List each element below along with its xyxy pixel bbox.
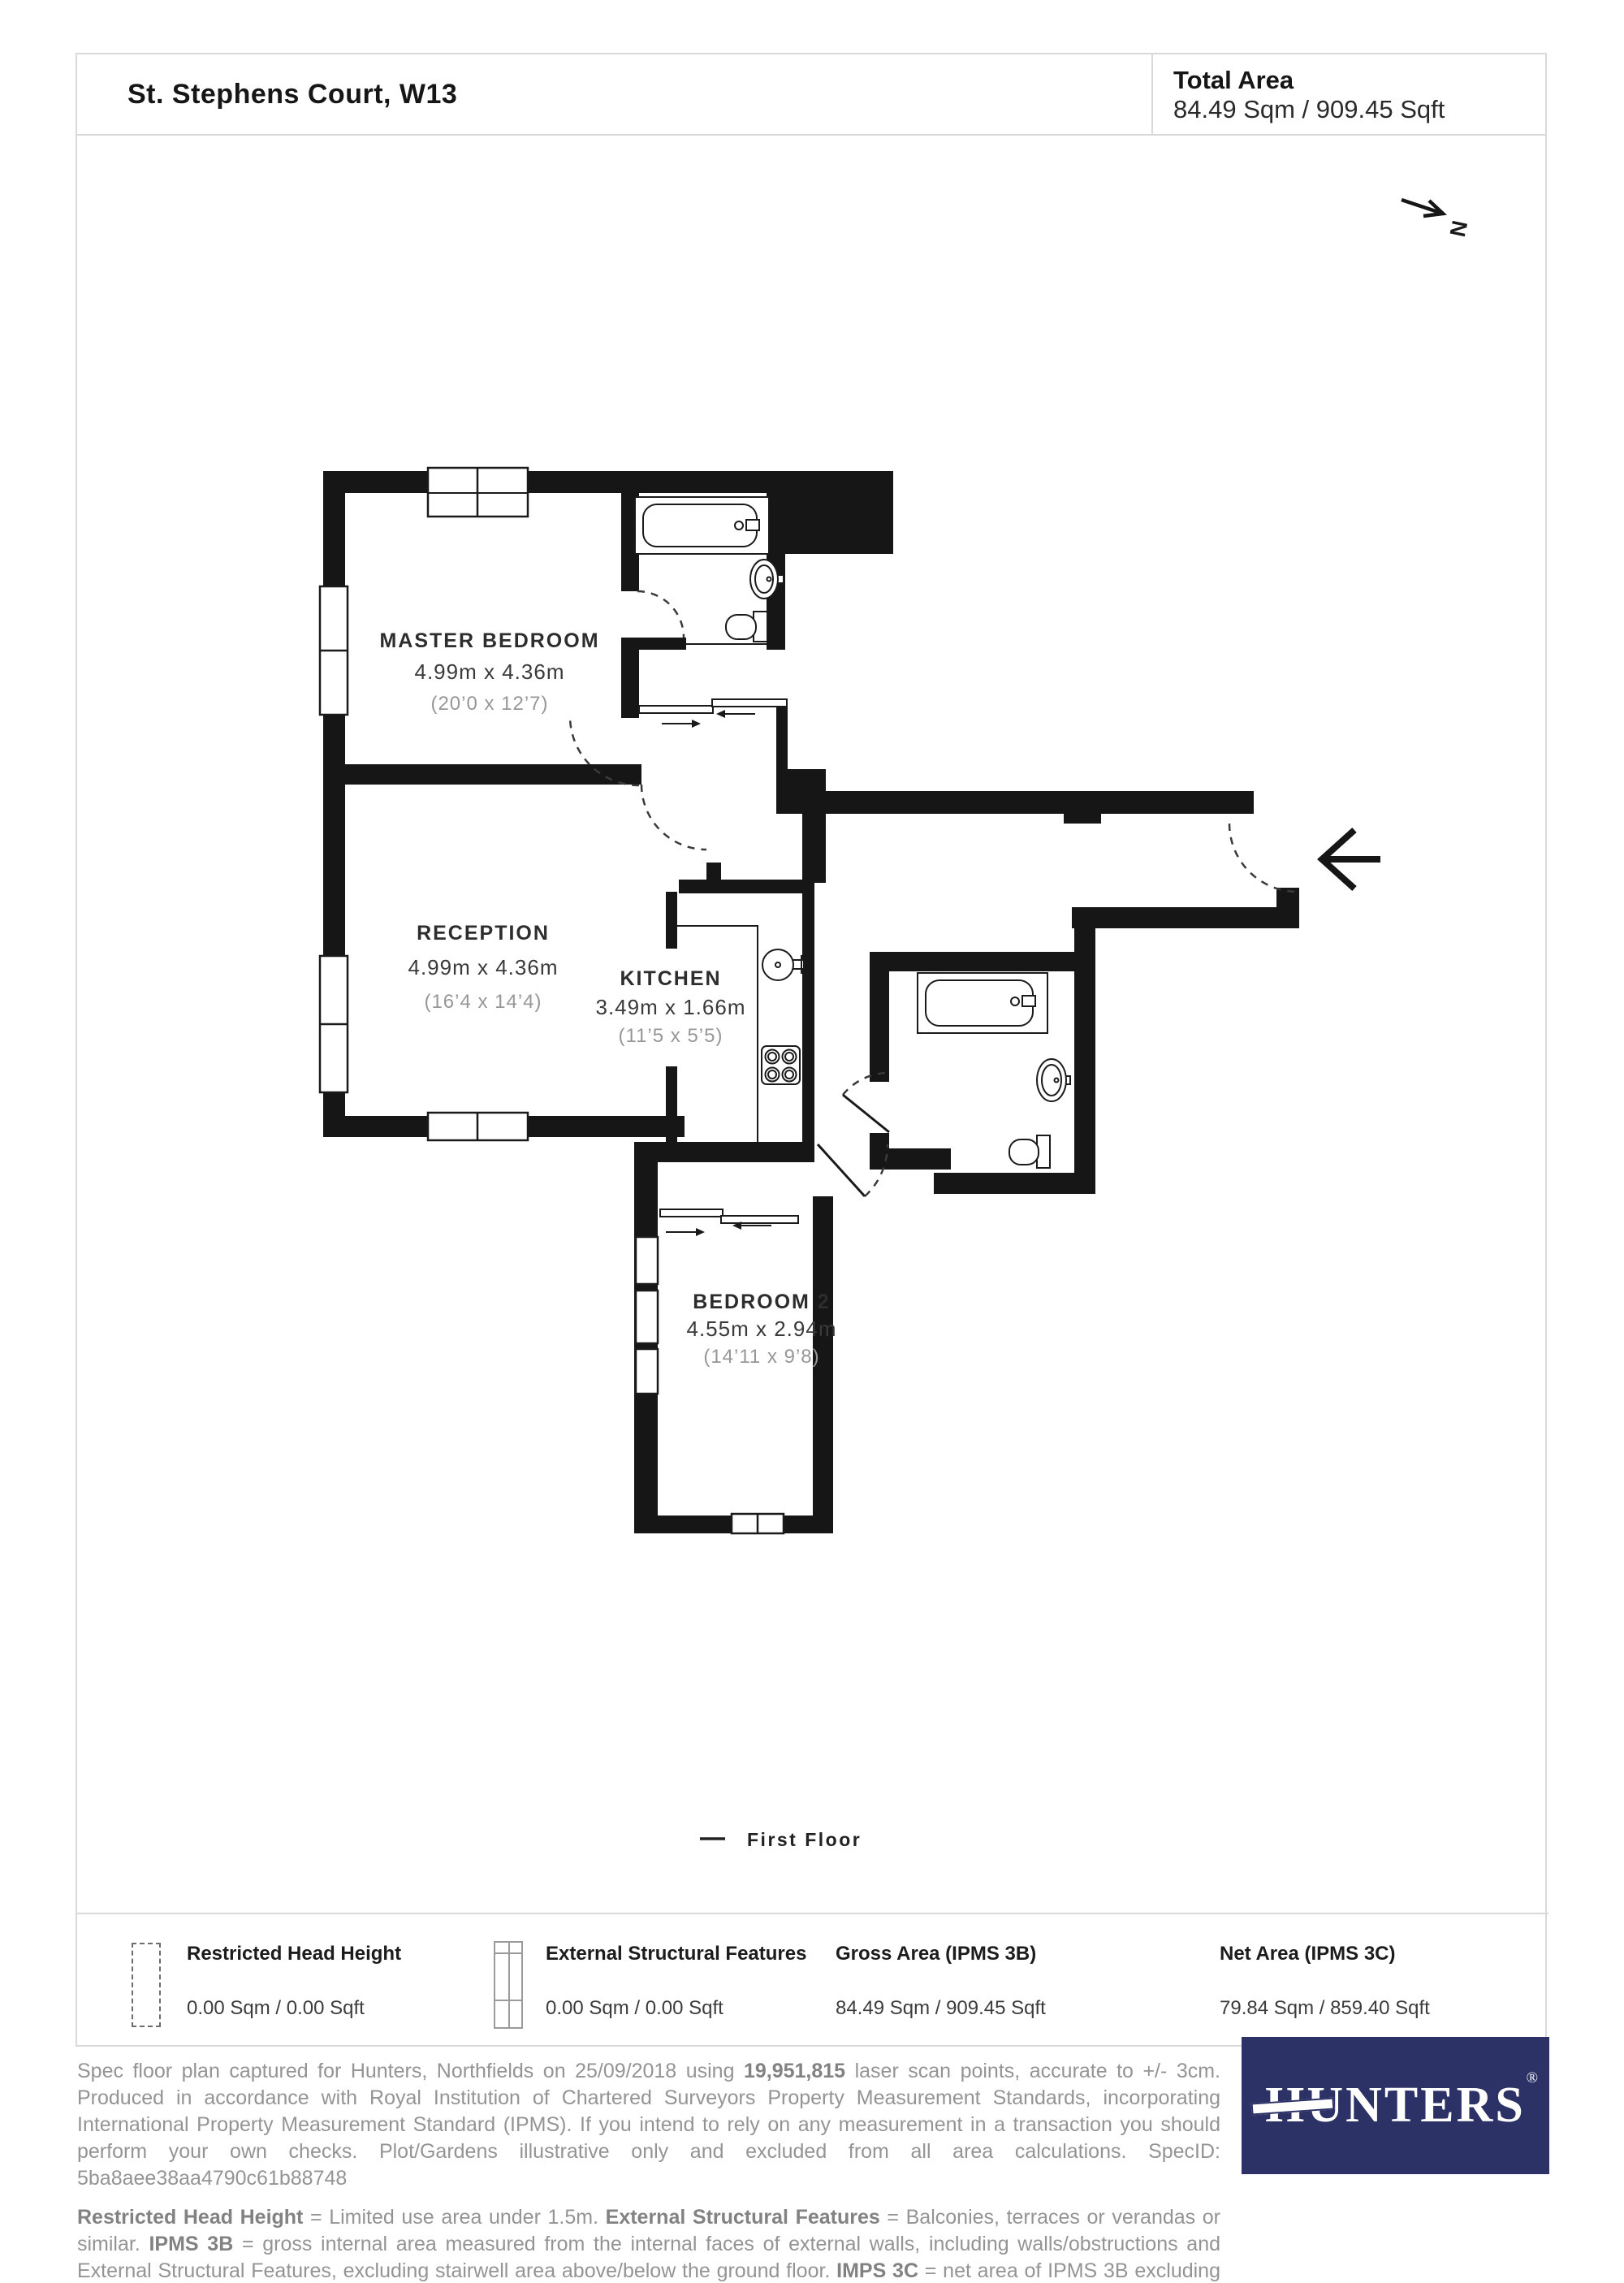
floor-plan-page: St. Stephens Court, W13 Total Area 84.49… xyxy=(0,0,1624,2283)
bathroom2-bathtub-icon xyxy=(918,973,1047,1033)
legend-title-external: External Structural Features xyxy=(546,1943,806,1965)
north-letter: N xyxy=(1445,218,1471,239)
svg-text:BEDROOM 2: BEDROOM 2 xyxy=(693,1291,830,1313)
restricted-head-height-icon xyxy=(132,1943,161,2027)
room-label-bedroom-2: BEDROOM 2 4.55m x 2.94m (14’11 x 9’8) xyxy=(687,1291,837,1368)
svg-text:4.99m x 4.36m: 4.99m x 4.36m xyxy=(408,955,559,979)
svg-text:(14’11 x 9’8): (14’11 x 9’8) xyxy=(703,1346,819,1368)
bathroom2-sink-icon xyxy=(1037,1059,1070,1101)
svg-text:(16’4 x 14’4): (16’4 x 14’4) xyxy=(424,991,542,1013)
bathroom2-toilet-icon xyxy=(1009,1135,1050,1168)
room-label-kitchen: KITCHEN 3.49m x 1.66m (11’5 x 5’5) xyxy=(596,967,746,1047)
svg-text:RECEPTION: RECEPTION xyxy=(417,922,550,945)
svg-text:(11’5 x 5’5): (11’5 x 5’5) xyxy=(619,1025,723,1047)
sliding-door-bedroom2 xyxy=(660,1209,798,1236)
svg-text:(20’0 x 12’7): (20’0 x 12’7) xyxy=(430,693,548,715)
kitchen-hob-icon xyxy=(762,1046,800,1084)
legend: Restricted Head Height 0.00 Sqm / 0.00 S… xyxy=(76,1913,1548,2047)
legend-value-gross-area: 84.49 Sqm / 909.45 Sqft xyxy=(836,1997,1046,2020)
door-arcs xyxy=(570,591,1298,1196)
svg-text:4.99m x 4.36m: 4.99m x 4.36m xyxy=(415,659,565,684)
room-label-master-bedroom: MASTER BEDROOM 4.99m x 4.36m (20’0 x 12’… xyxy=(379,629,599,715)
legend-value-external: 0.00 Sqm / 0.00 Sqft xyxy=(546,1997,723,2020)
registered-trademark-icon: ® xyxy=(1527,2069,1538,2087)
legend-title-gross-area: Gross Area (IPMS 3B) xyxy=(836,1943,1036,1965)
external-structural-features-icon xyxy=(494,1941,523,2029)
legend-title-net-area: Net Area (IPMS 3C) xyxy=(1220,1943,1396,1965)
svg-text:First Floor: First Floor xyxy=(747,1829,862,1850)
entrance-arrow-icon xyxy=(1322,830,1380,889)
footer-disclaimer: Spec floor plan captured for Hunters, No… xyxy=(77,2058,1220,2283)
ensuite-toilet-icon xyxy=(726,612,767,642)
ensuite-bathtub-icon xyxy=(635,497,769,554)
room-labels: MASTER BEDROOM 4.99m x 4.36m (20’0 x 12’… xyxy=(379,629,836,1368)
room-label-reception: RECEPTION 4.99m x 4.36m (16’4 x 14’4) xyxy=(408,922,559,1013)
svg-text:3.49m x 1.66m: 3.49m x 1.66m xyxy=(596,995,746,1019)
floor-label: First Floor xyxy=(700,1829,862,1850)
legend-title-restricted: Restricted Head Height xyxy=(187,1943,401,1965)
sliding-door-master xyxy=(639,699,787,728)
footer-paragraph-1: Spec floor plan captured for Hunters, No… xyxy=(77,2058,1220,2192)
hunters-logo: HUNTERS ® xyxy=(1242,2037,1549,2174)
svg-text:MASTER BEDROOM: MASTER BEDROOM xyxy=(379,629,599,652)
svg-text:KITCHEN: KITCHEN xyxy=(620,967,721,990)
kitchen-sink-icon xyxy=(762,949,804,980)
legend-value-restricted: 0.00 Sqm / 0.00 Sqft xyxy=(187,1997,365,2020)
north-arrow-icon: N xyxy=(1402,200,1472,239)
svg-text:4.55m x 2.94m: 4.55m x 2.94m xyxy=(687,1317,837,1341)
legend-value-net-area: 79.84 Sqm / 859.40 Sqft xyxy=(1220,1997,1430,2020)
footer-paragraph-2: Restricted Head Height = Limited use are… xyxy=(77,2204,1220,2283)
